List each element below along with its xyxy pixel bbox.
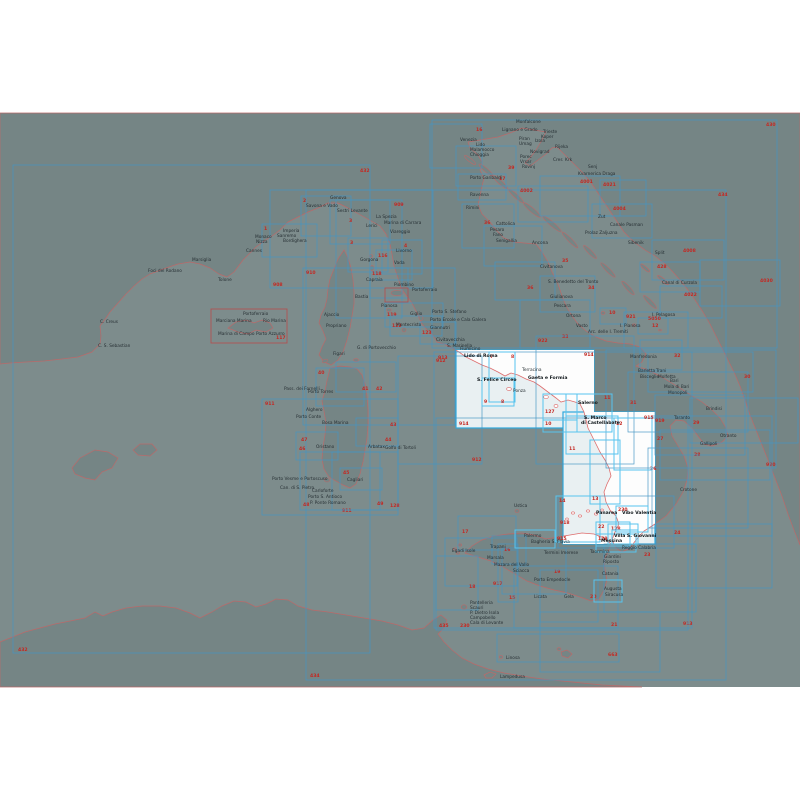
- small-island: [458, 544, 461, 546]
- place-label: Giulianova: [550, 294, 573, 300]
- chart-number-11: 11: [604, 395, 610, 401]
- place-label: Tolone: [217, 277, 232, 283]
- place-label: Ortona: [566, 313, 581, 319]
- chart-number-47: 47: [301, 437, 307, 443]
- chart-number-23: 23: [644, 552, 650, 558]
- place-label: Arbatax: [368, 444, 385, 450]
- chart-number-920: 920: [766, 462, 776, 468]
- chart-number-915: 915: [644, 415, 654, 421]
- chart-number-44: 44: [385, 437, 391, 443]
- chart-number-922: 922: [538, 338, 548, 344]
- chart-number-43: 43: [390, 422, 396, 428]
- place-label: Porto Torres: [308, 389, 334, 395]
- place-label: C. Creus: [100, 319, 119, 325]
- place-label: Porto Vesme e Portoscuso: [272, 476, 328, 482]
- chart-number-921: 921: [626, 314, 636, 320]
- place-label: Giannutri: [430, 325, 450, 331]
- place-label: Cres: [553, 157, 563, 163]
- place-label: Licata: [534, 594, 547, 600]
- place-label: Ancona: [532, 240, 548, 246]
- place-label: Trani: [655, 368, 666, 374]
- small-island-highlight: [578, 515, 581, 517]
- place-label: Ravenna: [470, 192, 489, 198]
- small-island-highlight: [586, 510, 589, 512]
- chart-number-11: 11: [569, 446, 575, 452]
- chart-number-912: 912: [472, 457, 482, 463]
- place-label: Marciana Marina: [216, 318, 252, 324]
- chart-number-49: 49: [377, 501, 383, 507]
- place-label: Sestri Levante: [337, 208, 368, 214]
- chart-number-41: 41: [362, 386, 368, 392]
- place-label: Termini Imerese: [543, 550, 579, 556]
- place-label: Alghero: [306, 407, 323, 413]
- chart-number-432: 432: [360, 168, 370, 174]
- place-label: Cala di Levante: [470, 620, 504, 626]
- chart-number-8: 8: [511, 354, 514, 360]
- place-label: Sciacca: [513, 568, 530, 574]
- place-label: Trapani: [489, 544, 506, 550]
- place-label: Augusta: [604, 586, 622, 592]
- place-label: Bisceglie: [640, 374, 660, 380]
- chart-number-914: 914: [459, 421, 469, 427]
- chart-number-15: 15: [509, 595, 515, 601]
- chart-number-40: 40: [318, 370, 324, 376]
- small-island-highlight: [544, 396, 549, 399]
- chart-number-4021: 4021: [603, 182, 616, 188]
- place-label: Gallipoli: [700, 441, 717, 447]
- chart-number-919: 919: [655, 418, 665, 424]
- small-island-highlight: [566, 518, 569, 520]
- place-label: Livorno: [396, 248, 412, 254]
- place-label: Viareggio: [390, 229, 411, 235]
- place-label: Senigallia: [496, 238, 517, 244]
- chart-number-434: 434: [718, 192, 728, 198]
- chart-number-118: 118: [372, 271, 382, 277]
- place-label: Egadi Isole: [452, 548, 476, 554]
- place-label: Marina di Campo: [218, 331, 255, 337]
- place-label: Taranto: [673, 415, 690, 421]
- place-label: Split: [655, 250, 665, 256]
- chart-number-3: 3: [349, 218, 352, 224]
- chart-number-4002: 4002: [520, 188, 533, 194]
- place-label-highlight: Villa S. Giovanni: [614, 533, 657, 539]
- small-island: [499, 656, 502, 659]
- place-label: Umag: [519, 141, 532, 147]
- chart-number-434: 434: [310, 673, 320, 679]
- place-label: Carloforte: [312, 488, 334, 494]
- place-label: Cattolica: [496, 221, 515, 227]
- chart-number-230: 230: [460, 623, 470, 629]
- chart-number-48: 48: [303, 502, 309, 508]
- small-island-highlight: [571, 512, 574, 514]
- chart-number-914: 914: [584, 352, 594, 358]
- place-label: Genova: [330, 195, 347, 201]
- place-label: Rio Marina: [263, 318, 286, 324]
- place-label: Portoferraio: [412, 287, 438, 293]
- chart-number-33: 33: [562, 334, 568, 340]
- place-label: Monfalcone: [516, 119, 541, 125]
- chart-index-map: 4324324304344349089099109119119129129139…: [0, 0, 800, 800]
- place-label: Barletta: [638, 368, 656, 374]
- small-island: [391, 290, 403, 295]
- chart-number-128: 128: [390, 503, 400, 509]
- chart-number-428: 428: [657, 264, 667, 270]
- small-island: [515, 510, 519, 513]
- place-label: I. Pelagosa: [652, 312, 676, 318]
- chart-number-29: 29: [693, 420, 699, 426]
- chart-number-46: 46: [299, 446, 305, 452]
- chart-number-45: 45: [343, 470, 349, 476]
- chart-number-910: 910: [306, 270, 316, 276]
- place-label: Cagliari: [347, 477, 363, 483]
- place-label: Bosa Marina: [322, 420, 349, 426]
- place-label-highlight: Panarea: [596, 510, 617, 516]
- place-label: Civitavecchia: [436, 337, 465, 343]
- chart-number-909: 909: [394, 202, 404, 208]
- place-label: Porto Azzurro: [256, 331, 285, 337]
- island-sardinia: [322, 366, 368, 488]
- place-label: Bastia: [355, 294, 369, 300]
- place-label: La Spezia: [376, 214, 397, 220]
- place-label: Kvarnerica Draga: [578, 171, 616, 177]
- place-label: Sibenik: [628, 240, 644, 246]
- place-label: Portoferraio: [243, 311, 269, 317]
- chart-number-34: 34: [588, 285, 594, 291]
- chart-number-12: 12: [652, 323, 658, 329]
- place-label: C. S. Sebastian: [98, 343, 131, 349]
- chart-number-435: 435: [439, 623, 449, 629]
- place-label: Pescara: [554, 303, 571, 309]
- place-label: I. Pianosa: [620, 323, 641, 329]
- place-label: Vada: [394, 260, 405, 266]
- chart-number-663: 663: [608, 652, 618, 658]
- place-label: Porto S. Antioco: [308, 494, 343, 500]
- place-label: Mazara del Vallo: [494, 562, 530, 568]
- place-label: Marina di Carrara: [384, 220, 422, 226]
- chart-number-39: 39: [508, 165, 514, 171]
- place-label: Porto Garibaldi: [470, 175, 502, 181]
- place-label: Gela: [564, 594, 574, 600]
- place-label: Canale Pasman: [610, 222, 643, 228]
- chart-number-918: 918: [560, 520, 570, 526]
- place-label: Bagheria S. Flavia: [531, 539, 570, 545]
- place-label: G. di Portovecchio: [357, 345, 396, 351]
- chart-number-18: 18: [469, 584, 475, 590]
- chart-number-22: 22: [598, 524, 604, 530]
- place-label: Civitanova: [540, 264, 563, 270]
- small-island: [557, 648, 561, 651]
- place-label: Prolaz Zaljuzna: [585, 230, 618, 236]
- place-label: Ajaccio: [324, 312, 340, 318]
- place-label: Senj: [588, 164, 597, 170]
- place-label: S. Benedetto del Tronto: [548, 279, 599, 285]
- place-label: Zut: [598, 214, 606, 220]
- chart-number-14: 14: [559, 498, 565, 504]
- chart-number-30: 30: [744, 374, 750, 380]
- place-label: Otranto: [720, 433, 737, 439]
- place-label: Golfo di Tortoli: [385, 445, 416, 451]
- place-label: Ponza: [513, 388, 526, 394]
- place-label: Palermo: [524, 533, 542, 539]
- place-label: Giglio: [410, 311, 423, 317]
- place-label: Cannes: [246, 248, 263, 254]
- chart-number-9: 9: [484, 399, 487, 405]
- place-label: Fano: [493, 232, 503, 238]
- place-label-highlight: di Castellabate: [581, 420, 620, 426]
- place-label: Marsala: [487, 555, 504, 561]
- place-label: Mola di Bari: [664, 384, 689, 390]
- place-label: Porto S. Stefano: [432, 309, 467, 315]
- place-label: Lampedusa: [500, 674, 525, 680]
- place-label: Ustica: [514, 503, 528, 509]
- chart-number-3: 3: [350, 240, 353, 246]
- small-island: [402, 328, 406, 332]
- place-label: Vasto: [576, 323, 588, 329]
- place-label: Brindisi: [706, 406, 722, 412]
- place-label: Riposto: [603, 559, 619, 565]
- place-label-highlight: Vibo Valentia: [622, 510, 656, 516]
- place-label: Porto Empedocle: [534, 577, 571, 583]
- small-island: [601, 312, 605, 315]
- chart-number-911: 911: [265, 401, 275, 407]
- place-label: Canal di Curzola: [662, 280, 697, 286]
- chart-number-26: 26: [650, 466, 656, 472]
- place-label-highlight: Lido di Roma: [464, 353, 498, 359]
- place-label: Venezia: [460, 137, 477, 143]
- chart-number-4030: 4030: [760, 278, 773, 284]
- place-label: Foci del Rodano: [148, 268, 182, 274]
- chart-number-4004: 4004: [613, 206, 626, 212]
- chart-number-119: 119: [387, 312, 397, 318]
- place-label: Porto Conte: [296, 414, 322, 420]
- chart-number-35: 35: [562, 258, 568, 264]
- place-label: Oristano: [316, 444, 335, 450]
- chart-number-1: 1: [264, 226, 267, 232]
- place-label: Monopoli: [668, 390, 687, 396]
- place-label: Capraia: [366, 277, 383, 283]
- chart-number-32: 32: [674, 353, 680, 359]
- chart-number-36: 36: [484, 220, 490, 226]
- place-label: Figari: [333, 351, 345, 357]
- place-label: Porto Ercole e Cala Galera: [430, 317, 486, 323]
- nautical-chart-index-svg: 4324324304344349089099109119119129129139…: [0, 0, 800, 800]
- chart-number-4022: 4022: [684, 292, 697, 298]
- place-label: Izola: [535, 138, 545, 144]
- small-island-highlight: [507, 388, 512, 391]
- place-label: Rijeka: [555, 144, 568, 150]
- chart-number-36: 36: [527, 285, 533, 291]
- place-label: Siracusa: [605, 592, 624, 598]
- place-label: Lerici: [366, 223, 377, 229]
- place-label: Savona e Vado: [306, 203, 338, 209]
- chart-number-20: 20: [590, 594, 596, 600]
- chart-number-127: 127: [545, 409, 555, 415]
- place-label: Krk: [565, 157, 573, 163]
- chart-number-21: 21: [611, 622, 617, 628]
- place-label: Marsiglia: [192, 257, 212, 263]
- place-label: Catania: [602, 571, 619, 577]
- chart-number-4001: 4001: [580, 179, 593, 185]
- chart-number-908: 908: [273, 282, 283, 288]
- chart-number-432: 432: [18, 647, 28, 653]
- chart-number-42: 42: [376, 386, 382, 392]
- place-label: Gorgona: [360, 257, 379, 263]
- place-label: Fiumicino: [460, 346, 481, 352]
- chart-number-27: 27: [657, 436, 663, 442]
- place-label: Rovinj: [522, 164, 535, 170]
- place-label: Nizza: [256, 239, 268, 245]
- place-label: Manfredonia: [630, 354, 657, 360]
- chart-number-911: 911: [342, 508, 352, 514]
- chart-number-13: 13: [592, 496, 598, 502]
- chart-number-10: 10: [609, 310, 615, 316]
- chart-number-24: 24: [674, 530, 680, 536]
- small-island: [461, 605, 467, 609]
- place-label: Bordighera: [283, 238, 307, 244]
- place-label: Reggio Calabria: [622, 545, 656, 551]
- chart-number-913: 913: [438, 355, 448, 361]
- chart-number-16: 16: [476, 127, 482, 133]
- place-label: Novigrad: [530, 149, 550, 155]
- place-label: Crotone: [680, 487, 697, 493]
- chart-number-430: 430: [766, 122, 776, 128]
- place-label: Rimini: [466, 205, 479, 211]
- place-label: Propriano: [326, 323, 347, 329]
- chart-number-8: 8: [501, 399, 504, 405]
- place-label-highlight: S. Felice Circeo: [477, 377, 517, 383]
- place-label: Chioggia: [470, 152, 489, 158]
- chart-number-116: 116: [378, 253, 388, 259]
- small-island: [659, 329, 662, 331]
- place-label: Bari: [670, 378, 679, 384]
- place-label: Linosa: [506, 655, 520, 661]
- small-island-highlight: [554, 405, 558, 408]
- place-label: P. Ponte Romano: [310, 500, 346, 506]
- chart-number-17: 17: [462, 529, 468, 535]
- place-label: Can. di S. Pietro: [280, 485, 315, 491]
- place-label-highlight: Salerno: [578, 400, 598, 406]
- place-label: Arc. delle I. Tremiti: [588, 329, 628, 335]
- place-label: Pianosa: [381, 303, 398, 309]
- place-label: Montecristo: [396, 322, 422, 328]
- chart-number-4008: 4008: [683, 248, 696, 254]
- place-label: Lignano e Grado: [502, 127, 538, 133]
- chart-number-10: 10: [545, 421, 551, 427]
- place-label-highlight: Gaeta e Formia: [528, 375, 567, 381]
- place-label: Terracina: [521, 367, 542, 373]
- chart-number-31: 31: [630, 400, 636, 406]
- small-island: [354, 359, 359, 362]
